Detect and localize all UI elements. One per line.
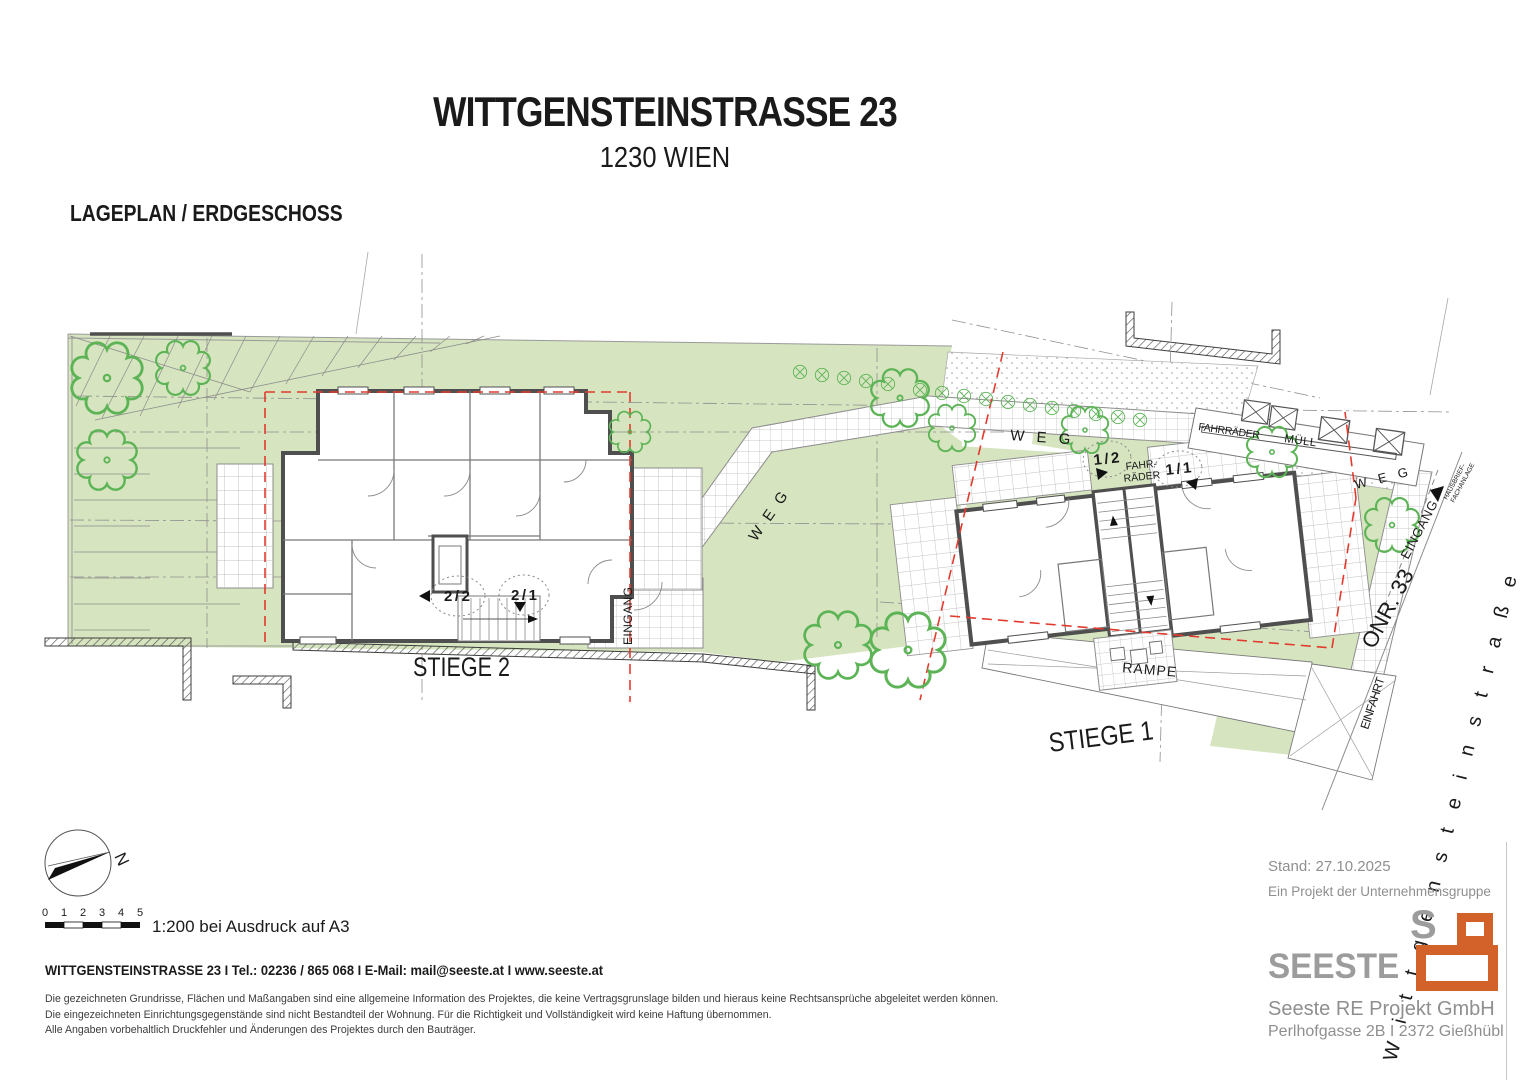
page-subtitle: 1230 WIEN (80, 142, 1250, 175)
north-label: N (110, 850, 132, 869)
weg-label-top: W E G (1010, 427, 1075, 448)
disclaimer-block: Die gezeichneten Grundrisse, Flächen und… (45, 992, 998, 1039)
company-name: Seeste RE Projekt GmbH (1268, 998, 1495, 1021)
scale-bar: 0 1 2 3 4 5 (42, 907, 143, 928)
scale-tick-4: 4 (118, 907, 124, 919)
stiege2-label: STIEGE 2 (413, 652, 510, 682)
logo-small-square-icon (1457, 913, 1493, 945)
building-stiege2 (283, 387, 662, 644)
north-arrow: N (45, 830, 133, 896)
page-title: WITTGENSTEINSTRASSE 23 (106, 88, 1223, 136)
scale-tick-1: 1 (61, 907, 67, 919)
eingang-label-stiege2: EINGANG (621, 587, 635, 645)
company-address: Perlhofgasse 2B I 2372 Gießhübl (1268, 1023, 1504, 1041)
logo-s-letter: S (1410, 903, 1437, 948)
contact-line: WITTGENSTEINSTRASSE 23 I Tel.: 02236 / 8… (45, 962, 603, 978)
plan-type-label: LAGEPLAN / ERDGESCHOSS (70, 200, 343, 227)
unit-label-1-2: 1/2 (1093, 449, 1121, 469)
stiege1-label: STIEGE 1 (1047, 715, 1155, 758)
disclaimer-line-3: Alle Angaben vorbehaltlich Druckfehler u… (45, 1023, 998, 1039)
scale-note: 1:200 bei Ausdruck auf A3 (152, 917, 350, 937)
unit-label-2-2: 2/2 (444, 588, 470, 605)
logo-big-square-icon (1416, 945, 1498, 991)
unit-label-2-1: 2/1 (511, 587, 537, 604)
scale-tick-5: 5 (137, 907, 143, 919)
seeste-logo: S SEESTE (1268, 905, 1508, 995)
group-line: Ein Projekt der Unternehmensgruppe (1268, 884, 1491, 899)
disclaimer-line-2: Die eingezeichneten Einrichtungsgegenstä… (45, 1008, 998, 1024)
stand-date: Stand: 27.10.2025 (1268, 858, 1391, 875)
scale-tick-3: 3 (99, 907, 105, 919)
scale-tick-0: 0 (42, 907, 48, 919)
page-edge-line (1506, 842, 1507, 1080)
header: WITTGENSTEINSTRASSE 23 1230 WIEN (0, 88, 1330, 175)
disclaimer-line-1: Die gezeichneten Grundrisse, Flächen und… (45, 992, 998, 1008)
unit-label-1-1: 1/1 (1165, 459, 1193, 479)
scale-tick-2: 2 (80, 907, 86, 919)
logo-wordmark: SEESTE (1268, 947, 1399, 987)
